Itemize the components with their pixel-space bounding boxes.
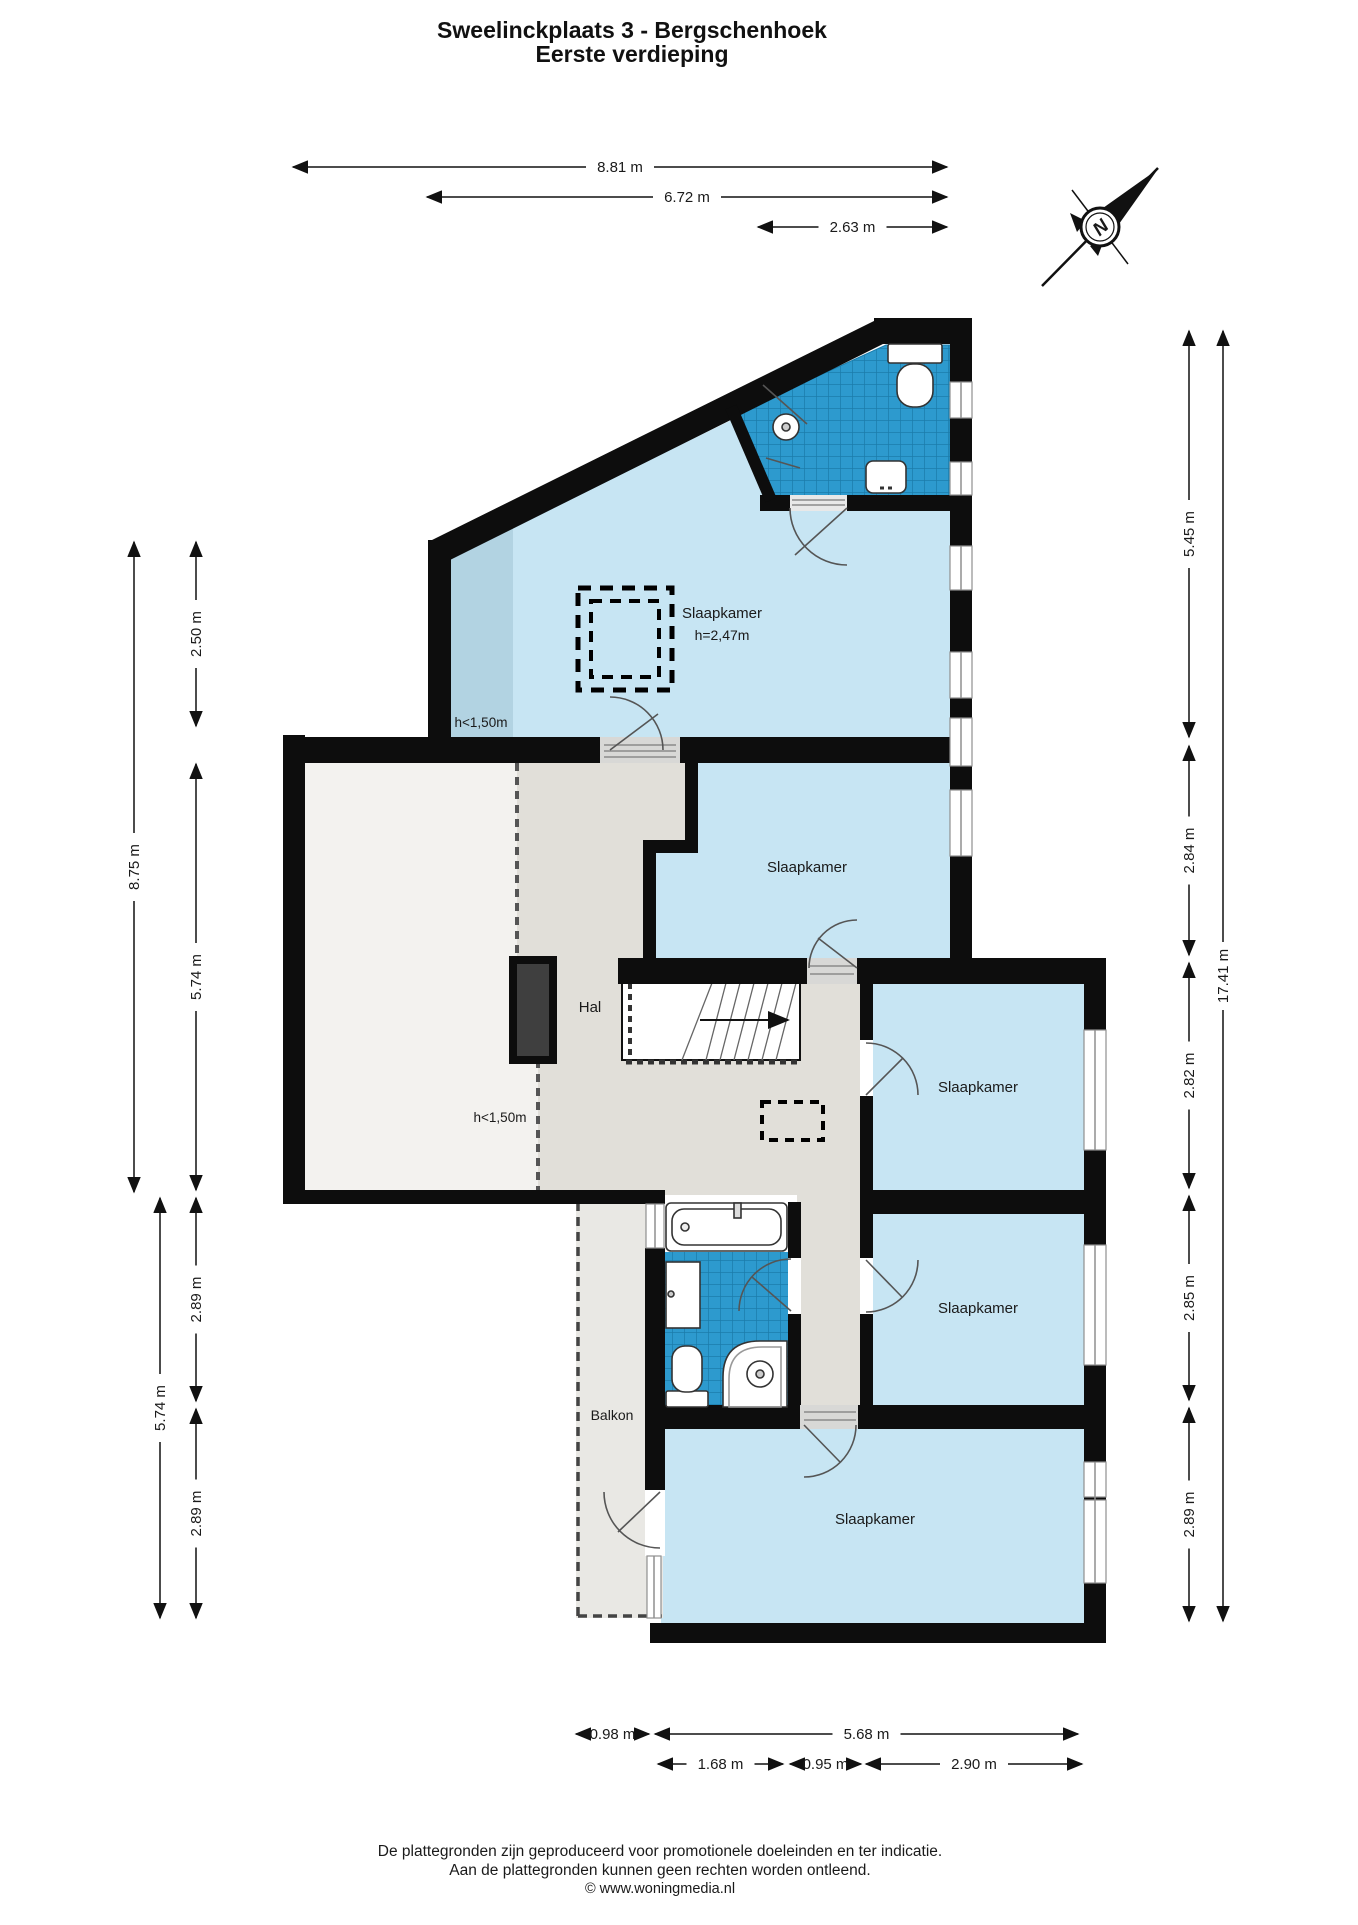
dimension: 5.74 m: [188, 764, 205, 1190]
dimension: 1.68 m: [658, 1756, 783, 1773]
slaapkamer-3-label: Slaapkamer: [938, 1079, 1018, 1096]
dimension-label: 1.68 m: [698, 1756, 744, 1773]
dimension-label: 2.85 m: [1181, 1275, 1198, 1321]
attic-room-floor: [305, 763, 538, 1190]
dimension: 8.75 m: [126, 542, 143, 1192]
dimension-label: 17.41 m: [1215, 949, 1232, 1003]
plan-title: Sweelinckplaats 3 - Bergschenhoek: [437, 17, 827, 43]
attic-lowroof: h<1,50m: [474, 1110, 527, 1125]
dimension-label: 5.68 m: [844, 1726, 890, 1743]
dimension-label: 2.82 m: [1181, 1053, 1198, 1099]
slaapkamer-2-label: Slaapkamer: [767, 859, 847, 876]
dimension: 0.98 m: [576, 1726, 649, 1743]
dimension-label: 8.75 m: [126, 844, 143, 890]
dimension: 2.84 m: [1181, 746, 1198, 955]
dimension-label: 2.89 m: [1181, 1492, 1198, 1538]
dimension: 2.82 m: [1181, 963, 1198, 1188]
dimension-label: 2.50 m: [188, 611, 205, 657]
balkon-label: Balkon: [591, 1407, 634, 1423]
slaapkamer-1-label: Slaapkamer: [682, 605, 762, 622]
chimney: [509, 956, 557, 1064]
dimension: 5.45 m: [1181, 331, 1198, 737]
dimension-label: 2.84 m: [1181, 828, 1198, 874]
hal-floor-corridor: [797, 1195, 866, 1428]
sink-2-icon: [666, 1262, 700, 1328]
dimension: 2.89 m: [188, 1198, 205, 1401]
sink-1-icon: [866, 461, 906, 493]
dimension: 0.95 m: [790, 1756, 861, 1773]
dimension: 2.50 m: [188, 542, 205, 726]
dimension-label: 5.45 m: [1181, 511, 1198, 557]
hal-label: Hal: [579, 999, 602, 1016]
dimension: 6.72 m: [427, 189, 947, 206]
dimension: 5.68 m: [655, 1726, 1078, 1743]
dimension-label: 5.74 m: [152, 1385, 169, 1431]
dimension-label: 2.63 m: [830, 219, 876, 236]
dimension: 2.89 m: [188, 1409, 205, 1618]
dimension: 2.85 m: [1181, 1196, 1198, 1400]
dimension: 2.89 m: [1181, 1408, 1198, 1621]
dimension-label: 5.74 m: [188, 954, 205, 1000]
slaapkamer-1-lowroof: h<1,50m: [455, 715, 508, 730]
floorplan-page: Sweelinckplaats 3 - Bergschenhoek Eerste…: [0, 0, 1358, 1920]
dimension-label: 8.81 m: [597, 159, 643, 176]
dimension-label: 2.89 m: [188, 1491, 205, 1537]
floorplan-drawing: Sweelinckplaats 3 - Bergschenhoek Eerste…: [0, 0, 1358, 1920]
footer-disclaimer-1: De plattegronden zijn geproduceerd voor …: [378, 1843, 942, 1860]
dimension-label: 6.72 m: [664, 189, 710, 206]
slaapkamer-5-label: Slaapkamer: [835, 1511, 915, 1528]
dimension: 17.41 m: [1215, 331, 1232, 1621]
shower-2-icon: [723, 1341, 787, 1407]
dimension-label: 0.95 m: [803, 1756, 849, 1773]
bathtub-icon: [666, 1203, 787, 1251]
dimension-label: 2.90 m: [951, 1756, 997, 1773]
slaapkamer-1-low-strip: [450, 526, 513, 745]
compass-rose: N: [1042, 168, 1158, 286]
dimension: 8.81 m: [293, 159, 947, 176]
slaapkamer-4-label: Slaapkamer: [938, 1300, 1018, 1317]
footer-disclaimer-2: Aan de plattegronden kunnen geen rechten…: [449, 1862, 870, 1879]
dimension-label: 0.98 m: [590, 1726, 636, 1743]
dimension: 2.63 m: [758, 219, 947, 236]
dimension: 5.74 m: [152, 1198, 169, 1618]
slaapkamer-1-height: h=2,47m: [695, 627, 750, 643]
toilet-2-icon: [666, 1346, 708, 1407]
plan-subtitle: Eerste verdieping: [535, 41, 728, 67]
stairs: [622, 983, 800, 1062]
footer-copyright: © www.woningmedia.nl: [585, 1881, 735, 1897]
dimension-label: 2.89 m: [188, 1277, 205, 1323]
dimension: 2.90 m: [866, 1756, 1082, 1773]
